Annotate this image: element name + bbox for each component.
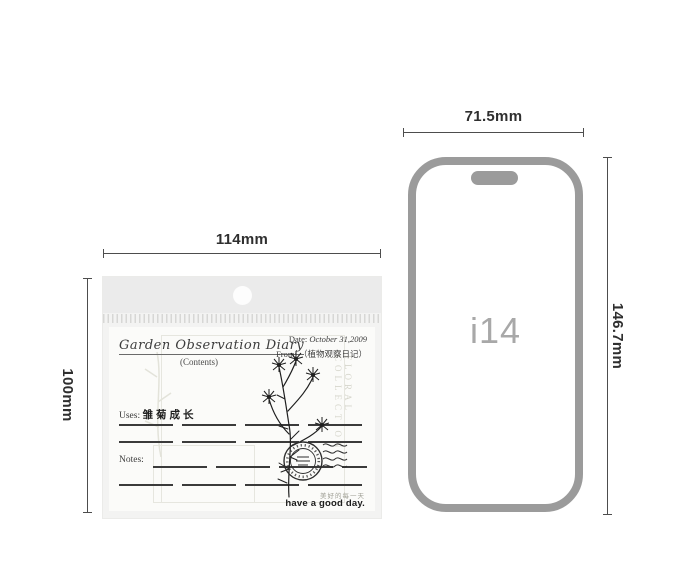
chamomile-illustration [249, 339, 369, 509]
perforation-edge [103, 314, 381, 323]
postmark-waves [323, 444, 347, 467]
footer-slogan: have a good day. [245, 498, 365, 509]
dimension-tick [603, 157, 612, 158]
uses-value: 雏菊成长 [143, 409, 197, 421]
package-width-dimension-line [103, 253, 381, 254]
size-comparison-diagram: 114mm 100mm 71.5mm 146.7mm FLORAL COLLEC… [0, 0, 700, 563]
phone-height-dimension-line [607, 157, 608, 515]
package-width-label: 114mm [103, 231, 381, 248]
package-height-label: 100mm [60, 355, 76, 435]
dimension-tick [583, 128, 584, 137]
product-package-bag: FLORAL COLLECTION Garden Observation Dia… [103, 277, 381, 518]
phone-model-label: i14 [408, 310, 583, 352]
dimension-tick [103, 249, 104, 258]
dimension-tick [380, 249, 381, 258]
dimension-tick [603, 514, 612, 515]
package-height-dimension-line [87, 278, 88, 513]
dimension-tick [83, 512, 92, 513]
dimension-tick [403, 128, 404, 137]
uses-row: Uses: 雏菊成长 [119, 407, 197, 422]
phone-dynamic-island [471, 171, 518, 185]
hang-hole [233, 286, 252, 305]
phone-height-label: 146.7mm [610, 291, 626, 381]
phone-width-dimension-line [403, 132, 584, 133]
uses-label: Uses: [119, 411, 140, 421]
notes-label: Notes: [119, 455, 144, 465]
dimension-tick [83, 278, 92, 279]
phone-width-label: 71.5mm [403, 108, 584, 125]
diary-memo-card: FLORAL COLLECTION Garden Observation Dia… [109, 327, 375, 511]
